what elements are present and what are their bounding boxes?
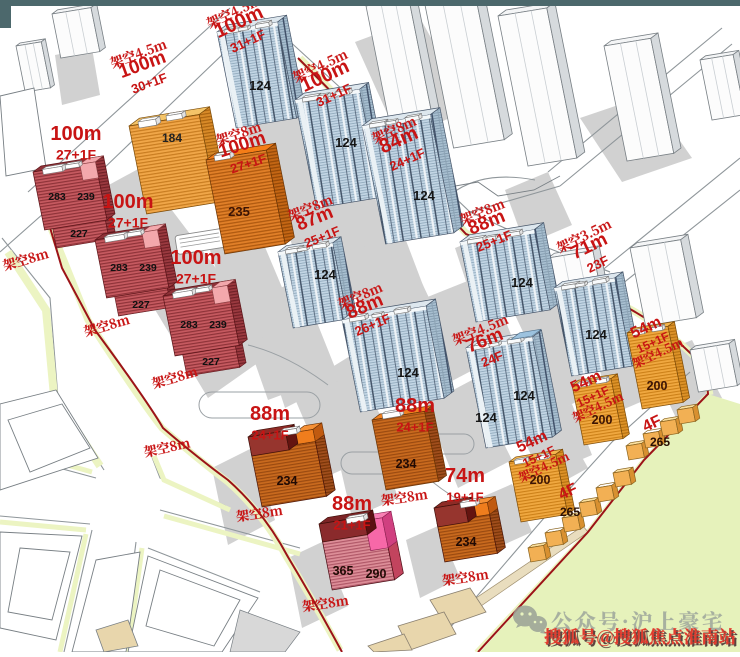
svg-text:88m: 88m (250, 403, 290, 425)
svg-text:200: 200 (647, 379, 668, 393)
svg-text:27+1F: 27+1F (176, 271, 217, 287)
svg-text:283: 283 (48, 191, 66, 203)
svg-text:88m: 88m (395, 395, 435, 417)
svg-text:235: 235 (228, 204, 250, 219)
svg-text:265: 265 (650, 435, 670, 449)
svg-text:290: 290 (366, 567, 387, 581)
svg-text:239: 239 (209, 319, 227, 331)
svg-text:365: 365 (333, 564, 354, 578)
svg-text:24+1F: 24+1F (396, 420, 433, 435)
svg-text:200: 200 (592, 413, 613, 427)
svg-text:100m: 100m (102, 191, 153, 213)
svg-text:24+1F: 24+1F (251, 428, 288, 443)
svg-text:19+1F: 19+1F (446, 490, 483, 505)
svg-text:200: 200 (530, 473, 551, 487)
svg-text:234: 234 (396, 457, 417, 471)
svg-text:234: 234 (277, 474, 298, 488)
svg-text:124: 124 (413, 188, 435, 203)
svg-text:239: 239 (139, 262, 157, 274)
svg-text:124: 124 (249, 78, 271, 93)
svg-text:124: 124 (511, 275, 533, 290)
svg-text:227: 227 (202, 356, 220, 368)
svg-text:124: 124 (397, 365, 419, 380)
svg-text:27+1F: 27+1F (56, 147, 97, 163)
svg-text:239: 239 (77, 191, 95, 203)
svg-text:21+1F: 21+1F (333, 518, 370, 533)
svg-text:184: 184 (162, 131, 182, 145)
svg-text:283: 283 (110, 262, 128, 274)
svg-text:88m: 88m (332, 493, 372, 515)
svg-text:124: 124 (335, 135, 357, 150)
svg-text:227: 227 (70, 228, 88, 240)
svg-text:27+1F: 27+1F (108, 215, 149, 231)
svg-text:227: 227 (132, 299, 150, 311)
svg-text:124: 124 (585, 327, 607, 342)
svg-text:100m: 100m (170, 247, 221, 269)
svg-text:124: 124 (314, 267, 336, 282)
svg-text:100m: 100m (50, 123, 101, 145)
svg-text:124: 124 (475, 410, 497, 425)
svg-text:234: 234 (456, 535, 477, 549)
svg-text:124: 124 (513, 388, 535, 403)
svg-text:265: 265 (560, 505, 580, 519)
svg-text:283: 283 (180, 319, 198, 331)
svg-text:74m: 74m (445, 465, 485, 487)
